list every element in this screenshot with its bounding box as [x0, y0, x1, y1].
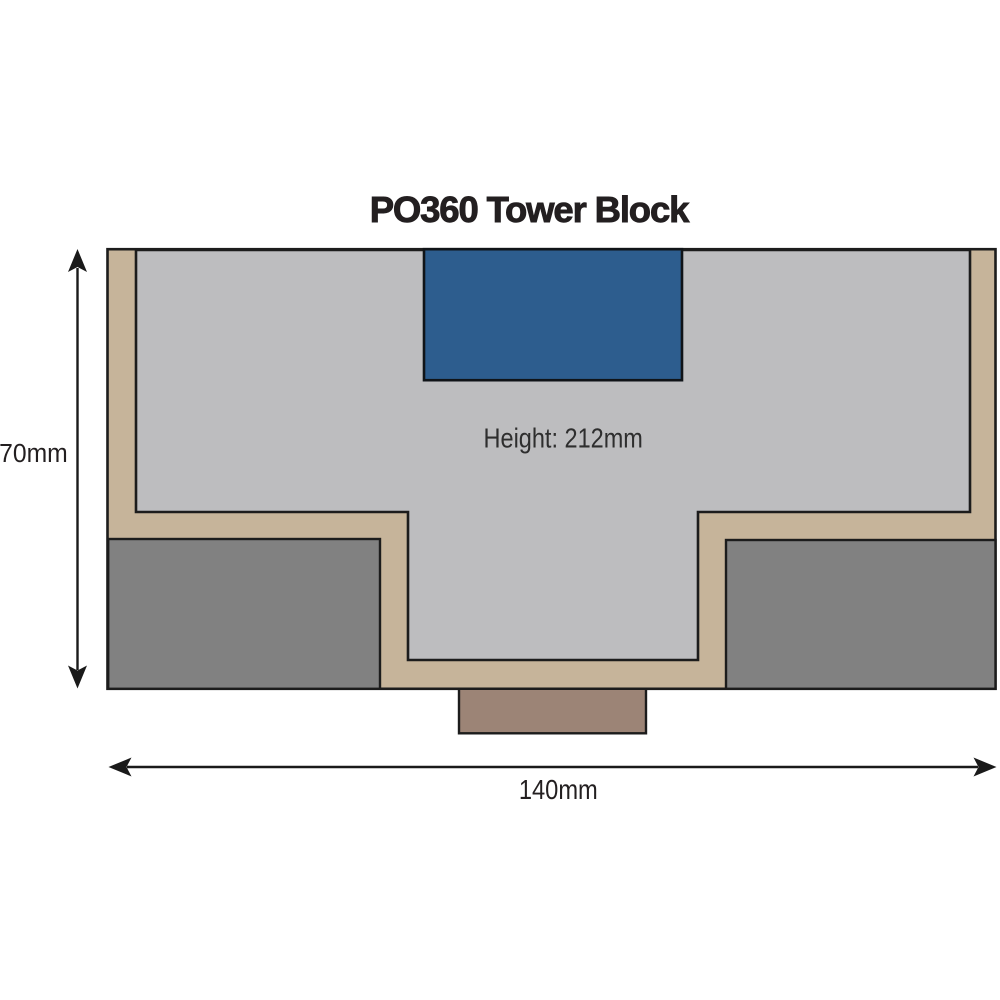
svg-text:140mm: 140mm — [519, 775, 598, 805]
svg-text:Height: 212mm: Height: 212mm — [484, 424, 643, 454]
svg-text:PO360 Tower Block: PO360 Tower Block — [370, 189, 690, 230]
svg-text:70mm: 70mm — [0, 439, 68, 468]
